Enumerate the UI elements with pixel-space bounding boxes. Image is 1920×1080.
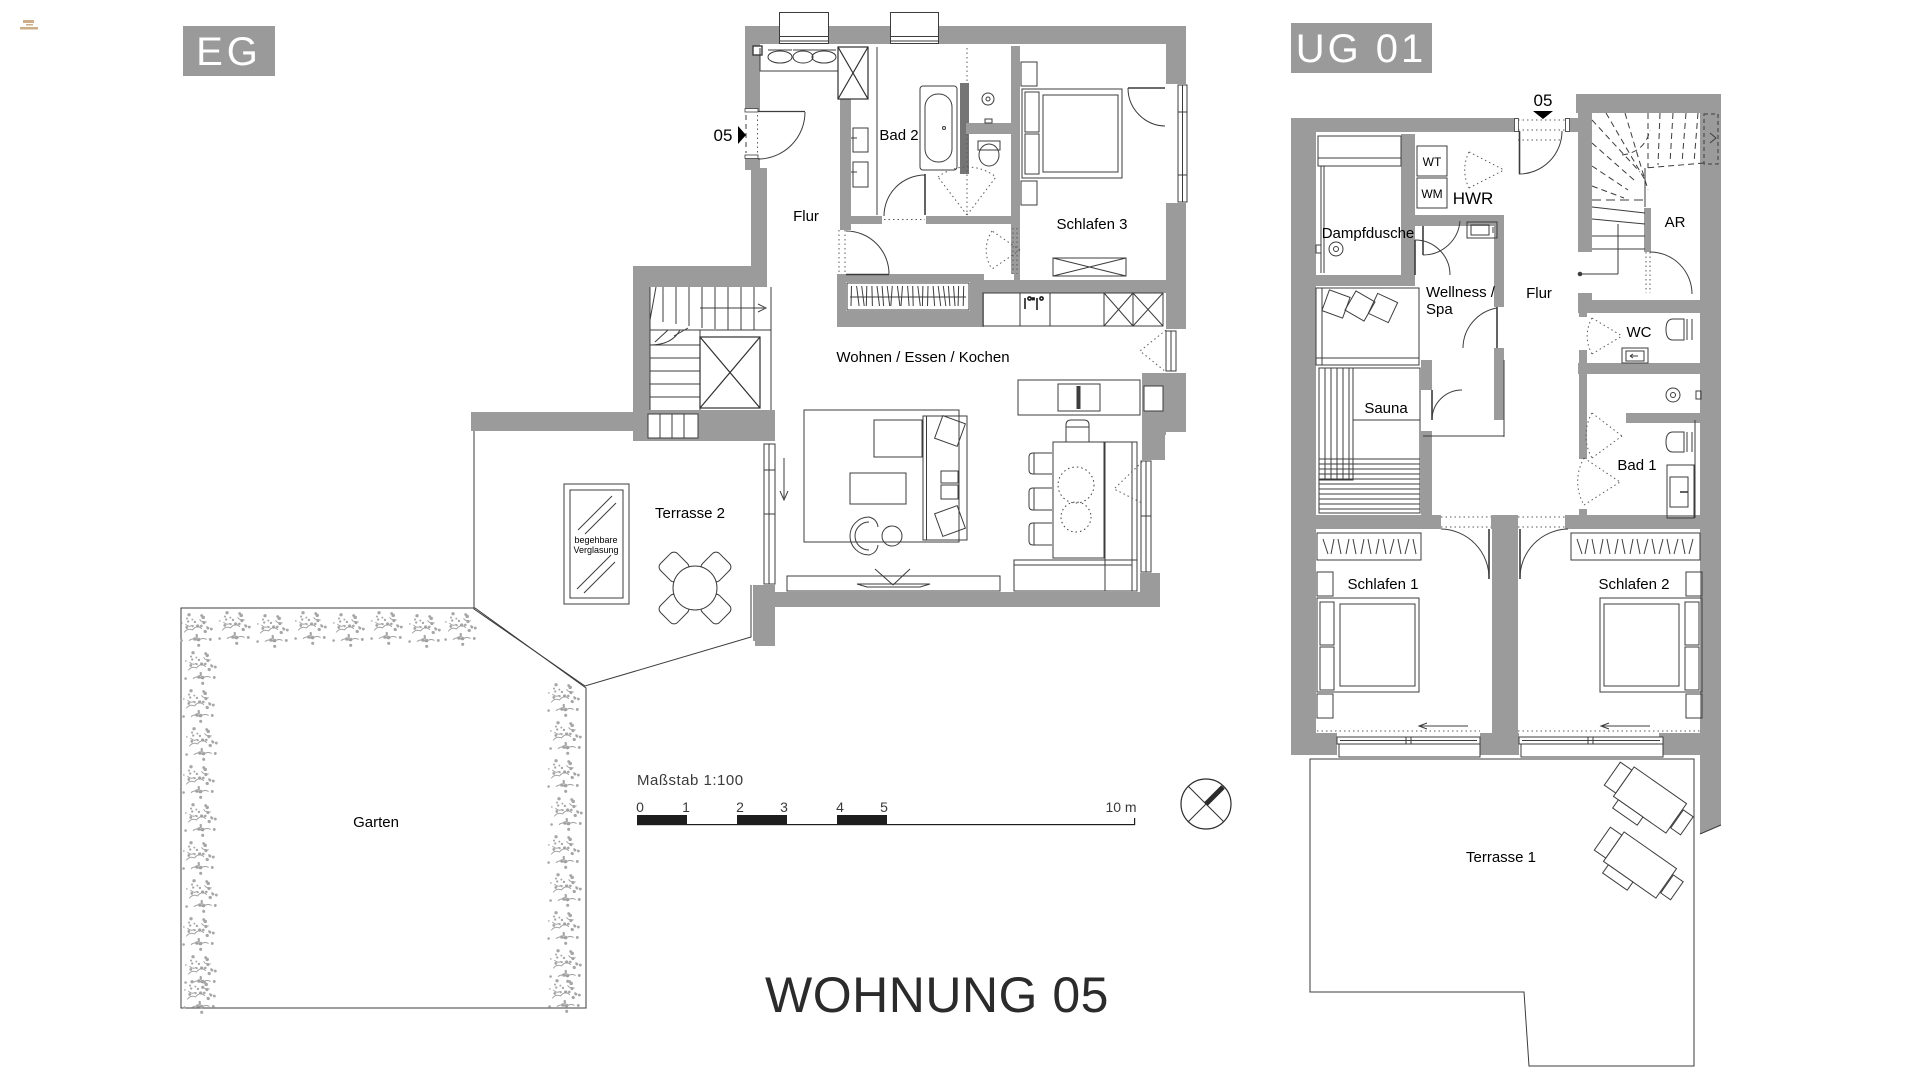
svg-text:05: 05 [714,126,733,145]
svg-text:WT: WT [1423,155,1442,169]
svg-text:WC: WC [1627,324,1652,341]
svg-text:10 m: 10 m [1105,799,1136,815]
svg-text:1: 1 [682,799,690,815]
svg-text:Flur: Flur [1526,285,1552,302]
svg-text:Schlafen 3: Schlafen 3 [1057,216,1128,233]
svg-text:Garten: Garten [353,814,399,831]
svg-text:Spa: Spa [1426,301,1453,318]
svg-text:Verglasung: Verglasung [573,545,618,555]
svg-text:Flur: Flur [793,208,819,225]
svg-text:5: 5 [880,799,888,815]
svg-text:Wohnen / Essen / Kochen: Wohnen / Essen / Kochen [836,349,1009,366]
svg-text:3: 3 [780,799,788,815]
svg-text:Bad 1: Bad 1 [1617,457,1656,474]
svg-text:Wellness /: Wellness / [1426,284,1496,301]
svg-text:EG: EG [196,30,262,74]
svg-text:Schlafen 1: Schlafen 1 [1348,576,1419,593]
svg-text:begehbare: begehbare [574,535,617,545]
svg-text:Terrasse 1: Terrasse 1 [1466,849,1536,866]
svg-text:0: 0 [636,799,644,815]
svg-text:Dampfdusche: Dampfdusche [1322,225,1415,242]
svg-text:Schlafen 2: Schlafen 2 [1599,576,1670,593]
svg-text:05: 05 [1534,91,1553,110]
svg-text:4: 4 [836,799,844,815]
svg-text:2: 2 [736,799,744,815]
svg-text:WOHNUNG 05: WOHNUNG 05 [765,967,1109,1023]
svg-text:Maßstab 1:100: Maßstab 1:100 [637,772,744,789]
svg-text:Terrasse 2: Terrasse 2 [655,505,725,522]
svg-text:UG 01: UG 01 [1296,27,1427,71]
svg-text:Sauna: Sauna [1364,400,1408,417]
svg-text:Bad 2: Bad 2 [879,127,918,144]
svg-text:WM: WM [1421,187,1442,201]
svg-text:HWR: HWR [1453,189,1494,208]
svg-text:AR: AR [1665,214,1686,231]
